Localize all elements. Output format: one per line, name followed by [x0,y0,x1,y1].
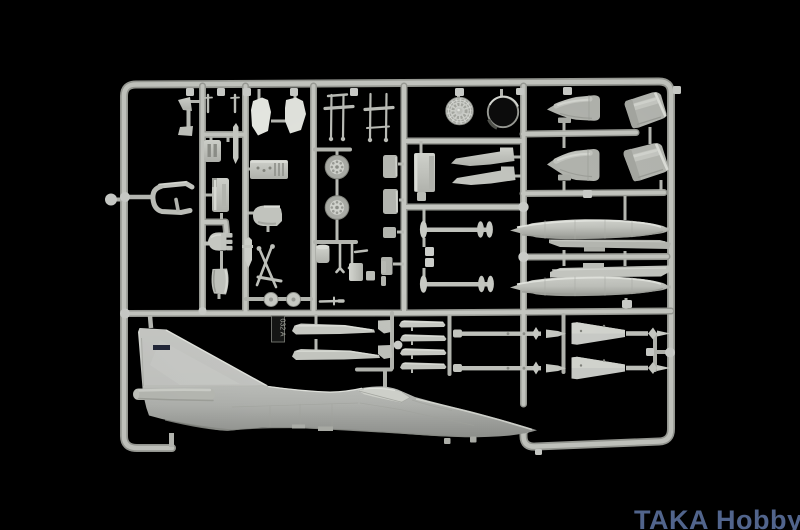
svg-text:TAKA Hobby: TAKA Hobby [634,505,800,530]
